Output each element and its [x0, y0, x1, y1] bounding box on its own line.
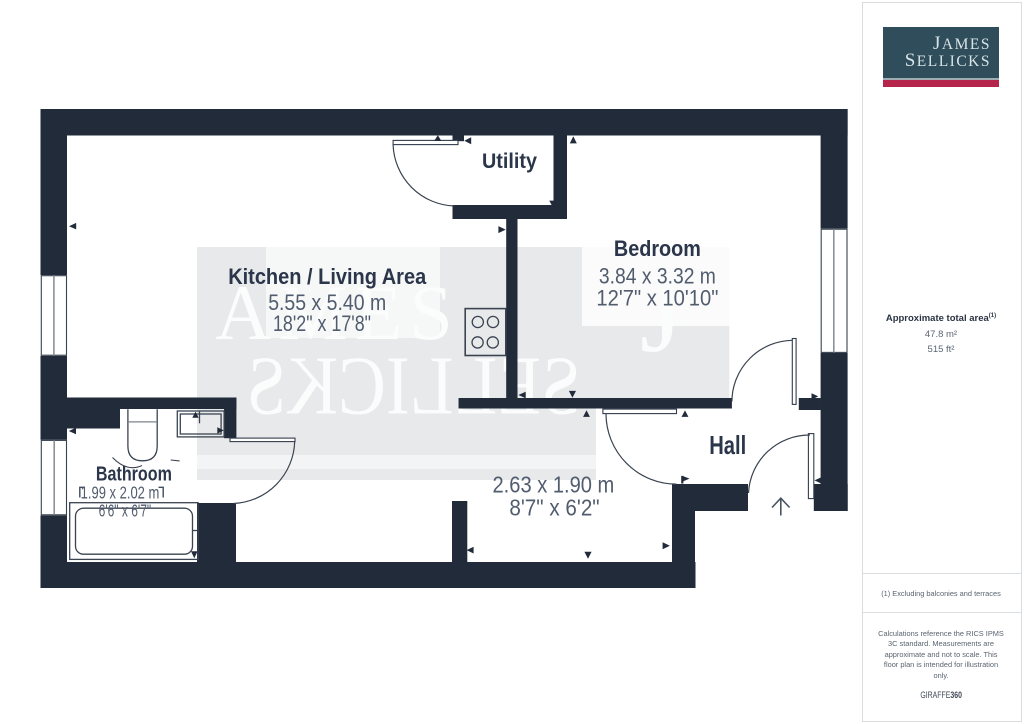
svg-text:Kitchen / Living Area: Kitchen / Living Area [228, 264, 426, 289]
svg-text:8'7" x 6'2": 8'7" x 6'2" [509, 494, 599, 520]
svg-text:18'2" x 17'8": 18'2" x 17'8" [273, 311, 371, 336]
svg-text:Hall: Hall [709, 430, 746, 460]
svg-text:SELLICKS: SELLICKS [246, 340, 581, 433]
svg-text:Bedroom: Bedroom [614, 236, 701, 261]
svg-text:Utility: Utility [482, 150, 537, 173]
svg-text:12'7" x 10'10": 12'7" x 10'10" [596, 286, 718, 311]
svg-text:2.63 x 1.90 m: 2.63 x 1.90 m [493, 471, 615, 497]
svg-text:6'6" x 6'7": 6'6" x 6'7" [99, 501, 152, 521]
